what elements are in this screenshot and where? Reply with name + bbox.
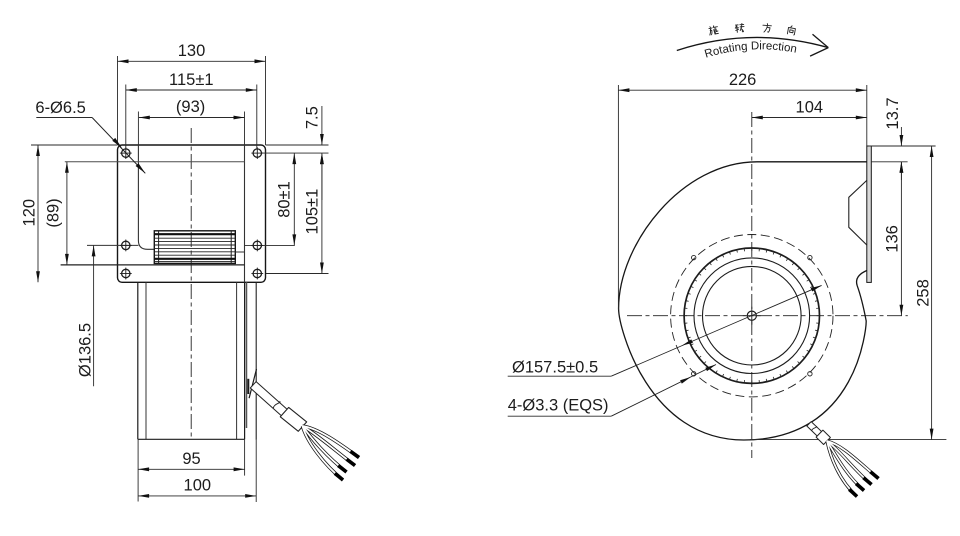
svg-text:258: 258 <box>914 279 932 307</box>
svg-text:80±1: 80±1 <box>275 181 293 218</box>
svg-text:(93): (93) <box>176 98 205 116</box>
svg-text:Ø136.5: Ø136.5 <box>76 323 94 377</box>
svg-text:7.5: 7.5 <box>304 106 322 129</box>
svg-text:226: 226 <box>729 71 757 89</box>
svg-text:13.7: 13.7 <box>884 97 902 129</box>
svg-text:Ø157.5±0.5: Ø157.5±0.5 <box>512 359 598 377</box>
svg-text:115±1: 115±1 <box>169 71 214 89</box>
svg-text:6-Ø6.5: 6-Ø6.5 <box>35 99 85 117</box>
svg-text:130: 130 <box>178 42 206 60</box>
svg-text:105±1: 105±1 <box>303 189 321 235</box>
svg-text:4-Ø3.3 (EQS): 4-Ø3.3 (EQS) <box>508 396 609 414</box>
svg-text:(89): (89) <box>45 198 63 227</box>
svg-text:136: 136 <box>884 225 902 253</box>
svg-text:104: 104 <box>796 98 824 116</box>
svg-text:120: 120 <box>21 199 39 227</box>
svg-text:100: 100 <box>184 477 212 495</box>
svg-text:95: 95 <box>182 450 200 468</box>
